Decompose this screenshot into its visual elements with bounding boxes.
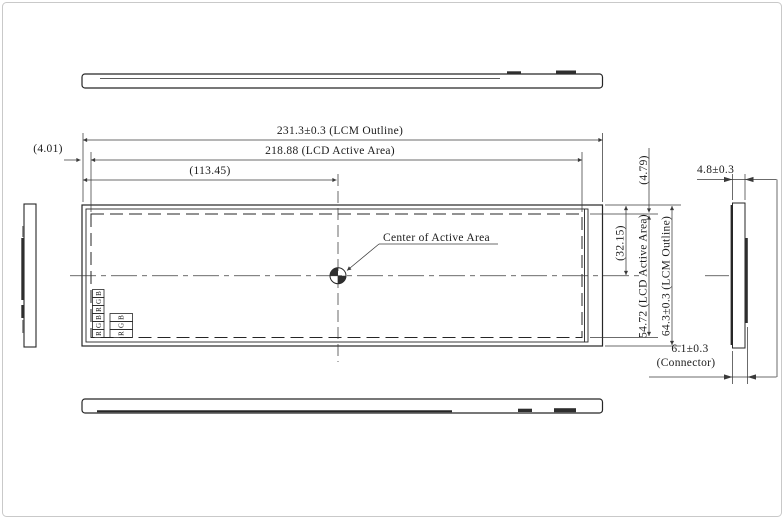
top-view-component-2 bbox=[556, 71, 576, 75]
center-label-text: Center of Active Area bbox=[383, 232, 490, 244]
right-view-connector bbox=[745, 238, 748, 323]
center-label-leader bbox=[347, 244, 379, 271]
bottom-side-view bbox=[82, 399, 603, 413]
left-view-outline bbox=[24, 204, 36, 347]
left-view-fpc-bar bbox=[21, 238, 24, 300]
dim-connector-arrow-right bbox=[748, 374, 757, 379]
subpixel-letter: R bbox=[95, 307, 103, 312]
subpixel-letter: B bbox=[118, 315, 126, 320]
center-mark-quadrant-tl bbox=[330, 268, 338, 276]
top-view-outline bbox=[82, 74, 603, 88]
left-view-fpc-bar-2 bbox=[21, 305, 24, 318]
dim-left-margin-text: (4.01) bbox=[33, 143, 63, 155]
top-side-view bbox=[82, 71, 603, 89]
bottom-view-component-2 bbox=[554, 408, 576, 412]
dim-lcm-height-text: 64.3±0.3 (LCM Outline) bbox=[661, 216, 673, 336]
drawing-canvas: Center of Active Area B G R B G R B G R bbox=[0, 0, 784, 519]
right-view-outline bbox=[733, 203, 746, 348]
dim-connector-arrow-left bbox=[724, 374, 733, 379]
dim-thickness-text: 4.8±0.3 bbox=[697, 164, 734, 176]
dim-lcm-width-text: 231.3±0.3 (LCM Outline) bbox=[277, 125, 403, 137]
right-side-view bbox=[705, 203, 748, 348]
dim-connector-text: 6.1±0.3 bbox=[671, 343, 708, 355]
subpixel-letter: G bbox=[95, 323, 103, 328]
center-label: Center of Active Area bbox=[347, 232, 498, 271]
subpixel-letter: R bbox=[118, 331, 126, 336]
dim-thickness-arrow-right bbox=[745, 177, 754, 182]
subpixel-letter: R bbox=[95, 331, 103, 336]
subpixel-letter: G bbox=[118, 323, 126, 328]
dim-half-height-text: (32.15) bbox=[615, 225, 627, 261]
left-side-view bbox=[21, 204, 36, 347]
front-view: Center of Active Area B G R B G R B G R bbox=[70, 174, 641, 362]
top-view-component-1 bbox=[507, 71, 521, 74]
subpixel-letter: B bbox=[95, 291, 103, 296]
dim-connector-label-text: (Connector) bbox=[657, 357, 716, 369]
dim-center-offset-text: (113.45) bbox=[189, 165, 230, 177]
dim-active-width-text: 218.88 (LCD Active Area) bbox=[265, 145, 395, 157]
lcm-mechanical-drawing: Center of Active Area B G R B G R B G R bbox=[0, 0, 784, 519]
center-mark-quadrant-br bbox=[338, 276, 346, 284]
subpixel-letter: G bbox=[95, 299, 103, 304]
center-mark bbox=[330, 268, 346, 284]
dimensions: 231.3±0.3 (LCM Outline) 218.88 (LCD Acti… bbox=[33, 125, 776, 380]
subpixel-letter: B bbox=[95, 315, 103, 320]
dim-top-margin-text: (4.79) bbox=[638, 155, 650, 185]
bottom-view-component-1 bbox=[518, 409, 532, 412]
dim-active-height-text: 54.72 (LCD Active Area) bbox=[638, 214, 650, 338]
dim-thickness-arrow-left bbox=[724, 177, 733, 182]
